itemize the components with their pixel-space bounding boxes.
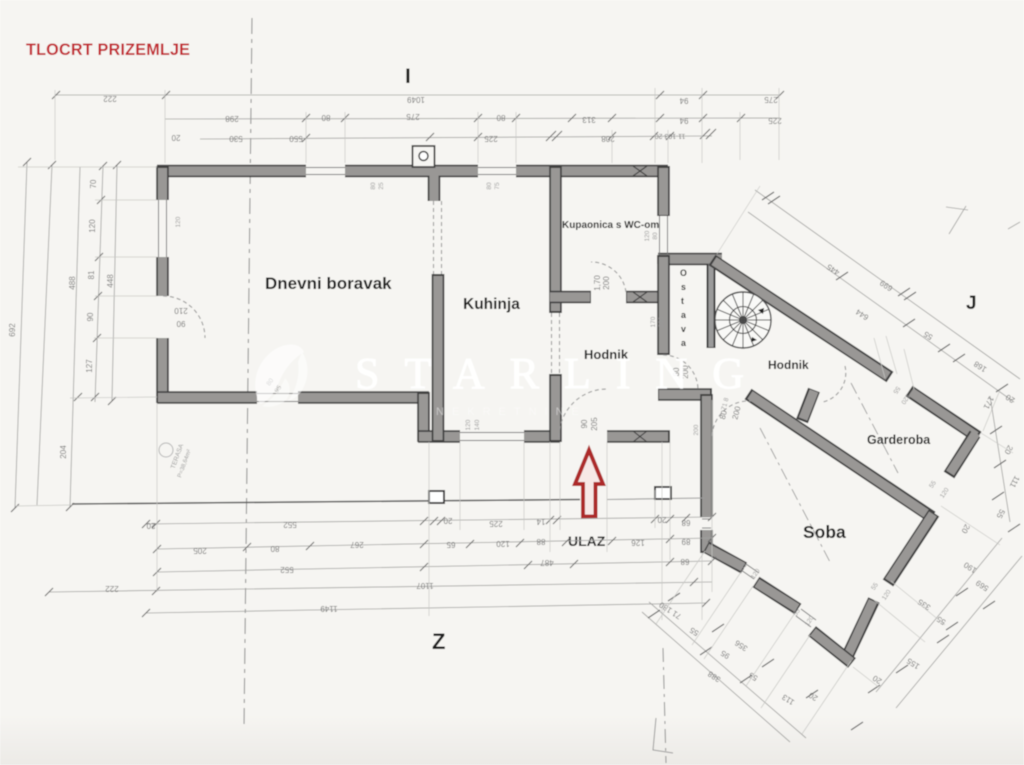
svg-text:25: 25 xyxy=(378,182,385,190)
svg-text:a: a xyxy=(681,338,686,348)
svg-text:275: 275 xyxy=(764,95,778,104)
svg-text:208: 208 xyxy=(601,134,615,143)
svg-text:Dnevni boravak: Dnevni boravak xyxy=(265,274,392,293)
svg-text:80: 80 xyxy=(321,113,330,122)
svg-text:205: 205 xyxy=(193,546,207,555)
svg-text:1049: 1049 xyxy=(407,95,425,104)
svg-text:200: 200 xyxy=(658,316,665,327)
svg-text:1149: 1149 xyxy=(320,604,338,613)
svg-text:Garderoba: Garderoba xyxy=(867,433,931,447)
svg-text:120: 120 xyxy=(496,539,510,548)
svg-text:313: 313 xyxy=(582,115,596,124)
svg-text:20: 20 xyxy=(171,133,180,142)
svg-text:Kupaonica s WC-om: Kupaonica s WC-om xyxy=(562,220,659,231)
svg-text:170: 170 xyxy=(650,316,657,327)
svg-text:126: 126 xyxy=(631,538,645,547)
svg-text:90: 90 xyxy=(176,319,185,328)
svg-text:448: 448 xyxy=(106,274,115,288)
svg-text:80: 80 xyxy=(370,182,377,190)
svg-text:552: 552 xyxy=(280,565,294,574)
svg-text:a: a xyxy=(681,310,686,320)
svg-text:I: I xyxy=(405,65,411,88)
svg-text:20: 20 xyxy=(146,521,155,530)
svg-text:1,70: 1,70 xyxy=(593,275,602,291)
svg-text:1107: 1107 xyxy=(416,581,434,590)
svg-text:t: t xyxy=(681,296,684,306)
svg-text:275: 275 xyxy=(406,112,420,121)
svg-text:488: 488 xyxy=(68,276,77,290)
svg-text:Kuhinja: Kuhinja xyxy=(463,296,520,313)
svg-text:225: 225 xyxy=(768,116,782,125)
svg-text:225: 225 xyxy=(489,519,503,528)
svg-text:127: 127 xyxy=(85,359,94,373)
svg-text:90: 90 xyxy=(86,312,95,321)
svg-text:225: 225 xyxy=(484,134,498,143)
svg-text:89: 89 xyxy=(681,537,690,546)
svg-text:692: 692 xyxy=(8,323,17,337)
svg-text:STARLING: STARLING xyxy=(355,349,769,398)
svg-text:222: 222 xyxy=(103,94,117,103)
svg-text:80: 80 xyxy=(270,544,279,553)
svg-text:88: 88 xyxy=(536,537,545,546)
svg-text:552: 552 xyxy=(283,520,297,529)
svg-text:94: 94 xyxy=(679,96,688,105)
svg-text:120: 120 xyxy=(88,219,97,233)
svg-text:68: 68 xyxy=(681,518,690,527)
svg-text:550: 550 xyxy=(289,134,303,143)
svg-text:120: 120 xyxy=(175,216,182,227)
svg-text:J: J xyxy=(966,293,977,314)
svg-text:205: 205 xyxy=(590,417,599,431)
svg-text:487: 487 xyxy=(540,558,554,567)
svg-text:Hodnik: Hodnik xyxy=(768,358,809,372)
svg-text:210: 210 xyxy=(174,306,188,315)
svg-text:v: v xyxy=(681,324,686,334)
svg-text:140: 140 xyxy=(474,419,481,430)
svg-text:11 103 20: 11 103 20 xyxy=(655,132,686,139)
svg-text:80: 80 xyxy=(496,113,505,122)
svg-text:s: s xyxy=(681,282,686,292)
svg-text:222: 222 xyxy=(105,584,119,593)
svg-text:530: 530 xyxy=(229,134,243,143)
svg-text:204: 204 xyxy=(59,445,68,459)
svg-text:20: 20 xyxy=(443,516,452,525)
svg-text:200: 200 xyxy=(693,424,700,435)
svg-text:298: 298 xyxy=(225,114,239,123)
svg-text:NEKRETNINE: NEKRETNINE xyxy=(436,406,587,418)
svg-text:Soba: Soba xyxy=(803,522,846,542)
svg-text:80: 80 xyxy=(486,182,493,190)
svg-text:68: 68 xyxy=(680,557,689,566)
svg-text:81: 81 xyxy=(87,270,96,279)
svg-text:70: 70 xyxy=(89,179,98,188)
svg-text:120: 120 xyxy=(465,419,472,430)
svg-text:65: 65 xyxy=(446,540,455,549)
svg-text:75: 75 xyxy=(494,182,501,190)
svg-text:14: 14 xyxy=(536,517,545,526)
svg-text:O: O xyxy=(680,268,687,278)
svg-text:TLOCRT PRIZEMLJE: TLOCRT PRIZEMLJE xyxy=(26,41,190,59)
svg-text:90: 90 xyxy=(580,419,589,428)
svg-text:94: 94 xyxy=(679,116,688,125)
svg-text:80: 80 xyxy=(652,232,659,240)
svg-text:Z: Z xyxy=(432,629,445,654)
svg-text:200: 200 xyxy=(602,276,611,290)
svg-text:120: 120 xyxy=(644,230,651,241)
svg-text:267: 267 xyxy=(350,540,364,549)
